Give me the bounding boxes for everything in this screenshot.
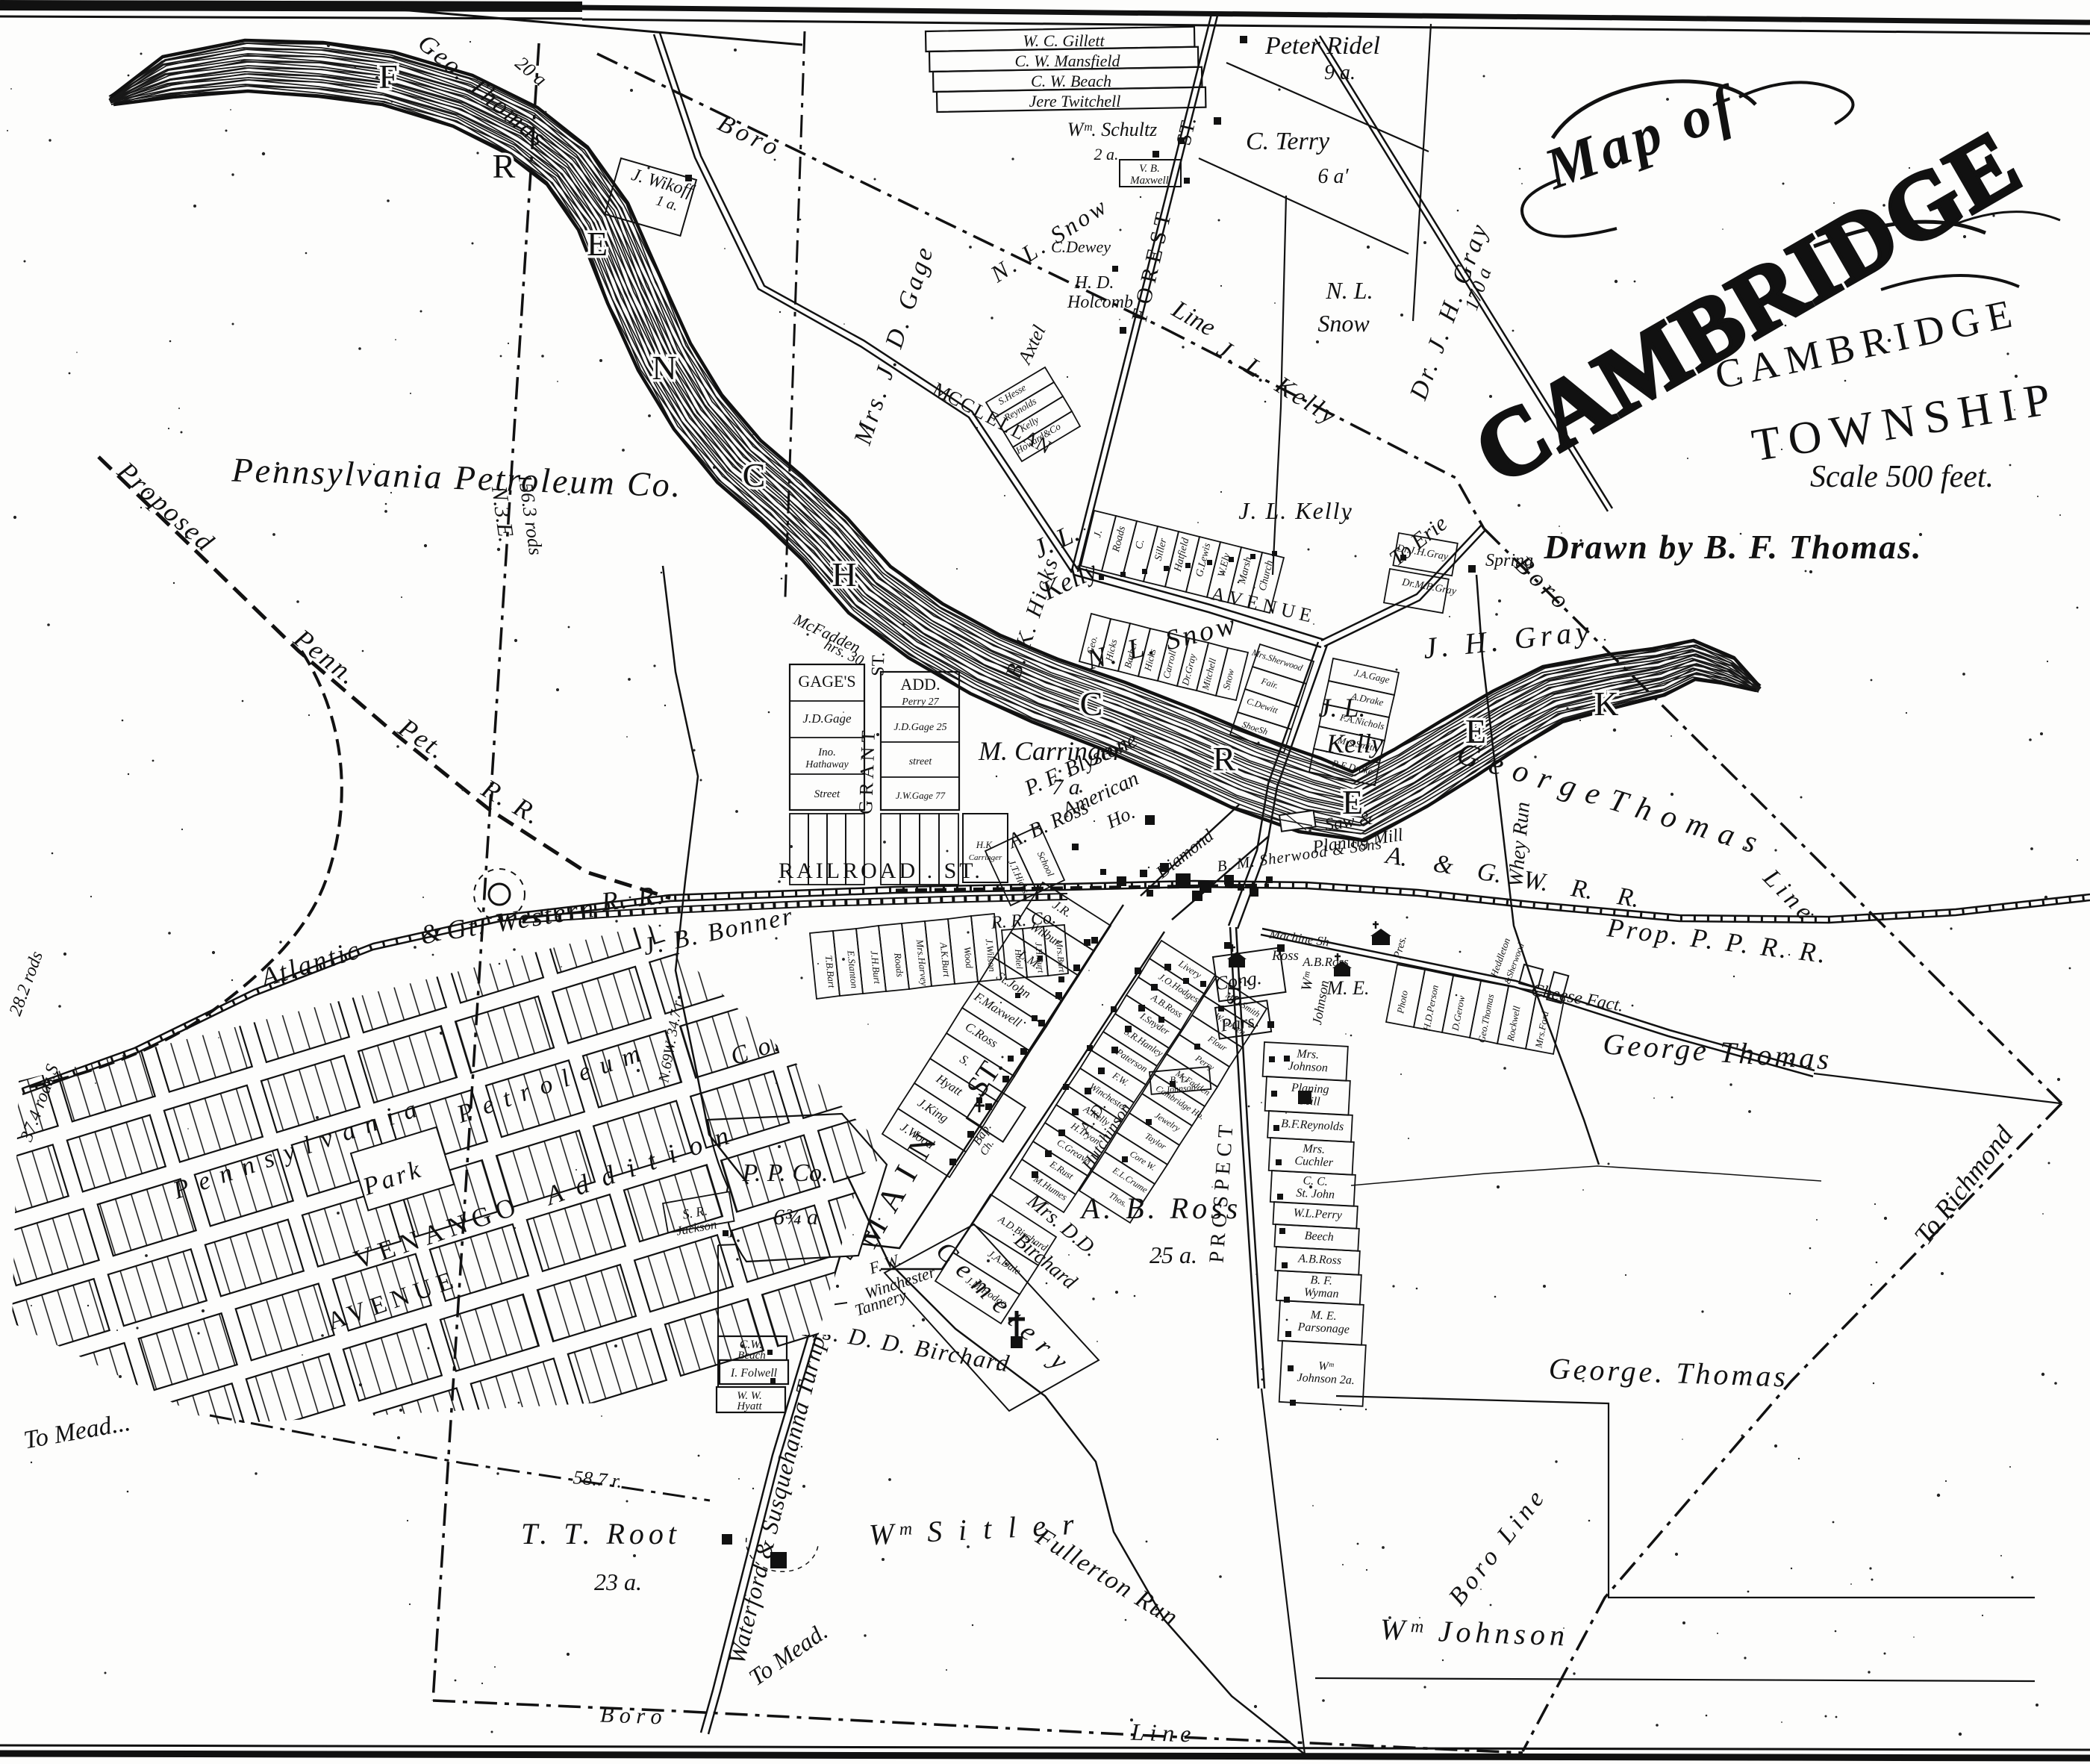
svg-text:N. L.: N. L. bbox=[1325, 277, 1373, 304]
svg-text:Spring: Spring bbox=[1485, 551, 1533, 570]
svg-text:Peter Ridel: Peter Ridel bbox=[1264, 32, 1380, 60]
svg-text:Maxwell: Maxwell bbox=[1129, 175, 1169, 187]
svg-text:Holcomb: Holcomb bbox=[1067, 293, 1133, 312]
svg-text:Wᵐ. Schultz: Wᵐ. Schultz bbox=[1067, 119, 1158, 140]
svg-text:C. W. Beach: C. W. Beach bbox=[1031, 72, 1111, 90]
svg-text:Wood: Wood bbox=[961, 946, 975, 969]
svg-text:M. E.: M. E. bbox=[1326, 977, 1369, 999]
svg-text:G R A N T: G R A N T bbox=[855, 730, 879, 814]
svg-text:N: N bbox=[652, 349, 676, 387]
svg-text:J.D.Gage: J.D.Gage bbox=[802, 711, 852, 726]
svg-text:R.: R. bbox=[1568, 874, 1595, 905]
svg-text:C: C bbox=[1080, 685, 1103, 723]
svg-text:W. C. Gillett: W. C. Gillett bbox=[1023, 31, 1105, 50]
svg-text:Wᵐ Johnson: Wᵐ Johnson bbox=[1379, 1612, 1570, 1653]
svg-text:ST.: ST. bbox=[868, 652, 888, 676]
svg-text:E: E bbox=[587, 225, 608, 263]
svg-text:J.D.Gage 25: J.D.Gage 25 bbox=[893, 722, 946, 733]
svg-text:Scale 500 feet.: Scale 500 feet. bbox=[1810, 460, 1994, 494]
svg-text:R: R bbox=[1213, 740, 1236, 778]
svg-text:M. E.: M. E. bbox=[1309, 1309, 1337, 1323]
svg-text:F: F bbox=[378, 57, 398, 96]
svg-text:Beech: Beech bbox=[1304, 1229, 1334, 1244]
svg-text:street: street bbox=[909, 756, 933, 767]
svg-text:Cuchler: Cuchler bbox=[1294, 1155, 1334, 1170]
svg-text:Carringer: Carringer bbox=[969, 853, 1002, 862]
svg-text:58.7 r.: 58.7 r. bbox=[573, 1466, 623, 1492]
svg-text:Drawn by B. F. Thomas.: Drawn by B. F. Thomas. bbox=[1543, 528, 1922, 566]
svg-text:9 a.: 9 a. bbox=[1324, 61, 1356, 84]
svg-text:A.B.Ross: A.B.Ross bbox=[1297, 1252, 1342, 1267]
svg-text:GAGE'S: GAGE'S bbox=[798, 672, 855, 691]
svg-text:Johnson: Johnson bbox=[1288, 1060, 1328, 1075]
svg-text:23 a.: 23 a. bbox=[594, 1568, 642, 1595]
svg-text:R.: R. bbox=[1615, 882, 1641, 913]
svg-text:Ross: Ross bbox=[1271, 948, 1299, 964]
svg-text:R: R bbox=[493, 147, 516, 185]
svg-text:Ino.: Ino. bbox=[817, 747, 836, 758]
svg-text:6 a′: 6 a′ bbox=[1317, 165, 1349, 188]
svg-text:T. T. Root: T. T. Root bbox=[521, 1517, 681, 1550]
svg-text:ADD.: ADD. bbox=[900, 675, 940, 694]
svg-text:Hathaway: Hathaway bbox=[805, 759, 849, 770]
svg-text:A.B.Ross: A.B.Ross bbox=[1302, 955, 1349, 969]
svg-text:Wyman: Wyman bbox=[1304, 1286, 1339, 1300]
svg-text:I. Folwell: I. Folwell bbox=[730, 1367, 778, 1380]
svg-text:B. F.: B. F. bbox=[1310, 1274, 1332, 1288]
svg-text:C. W. Mansfield: C. W. Mansfield bbox=[1015, 52, 1121, 70]
svg-text:C. C.: C. C. bbox=[1303, 1174, 1328, 1188]
svg-text:V. B.: V. B. bbox=[1139, 163, 1160, 175]
svg-text:Hyatt: Hyatt bbox=[736, 1400, 762, 1412]
svg-text:G.: G. bbox=[1475, 858, 1503, 889]
svg-text:2 a.: 2 a. bbox=[1094, 145, 1119, 163]
svg-text:Mrs.: Mrs. bbox=[1302, 1142, 1326, 1156]
svg-text:L i n e: L i n e bbox=[1130, 1718, 1192, 1748]
svg-text:H. D.: H. D. bbox=[1074, 273, 1114, 293]
svg-text:J.W.Gage 77: J.W.Gage 77 bbox=[896, 790, 946, 801]
svg-text:Snow: Snow bbox=[1317, 310, 1370, 337]
svg-text:Street: Street bbox=[814, 788, 840, 800]
svg-text:H: H bbox=[832, 555, 856, 593]
svg-text:Mrs.: Mrs. bbox=[1296, 1047, 1320, 1062]
svg-text:B o r o: B o r o bbox=[600, 1703, 663, 1730]
svg-text:J. L. Kelly: J. L. Kelly bbox=[1238, 497, 1353, 524]
svg-text:C: C bbox=[743, 456, 766, 494]
svg-text:Wᵐ: Wᵐ bbox=[1318, 1359, 1335, 1373]
svg-text:A. B. Ross: A. B. Ross bbox=[1079, 1191, 1241, 1225]
svg-text:C. Terry: C. Terry bbox=[1246, 128, 1330, 155]
svg-text:Perry 27: Perry 27 bbox=[901, 696, 939, 708]
svg-text:W.L.Perry: W.L.Perry bbox=[1293, 1206, 1343, 1221]
svg-text:St. John: St. John bbox=[1296, 1187, 1335, 1202]
svg-text:K: K bbox=[1594, 685, 1618, 723]
svg-text:25 a.: 25 a. bbox=[1149, 1241, 1197, 1268]
